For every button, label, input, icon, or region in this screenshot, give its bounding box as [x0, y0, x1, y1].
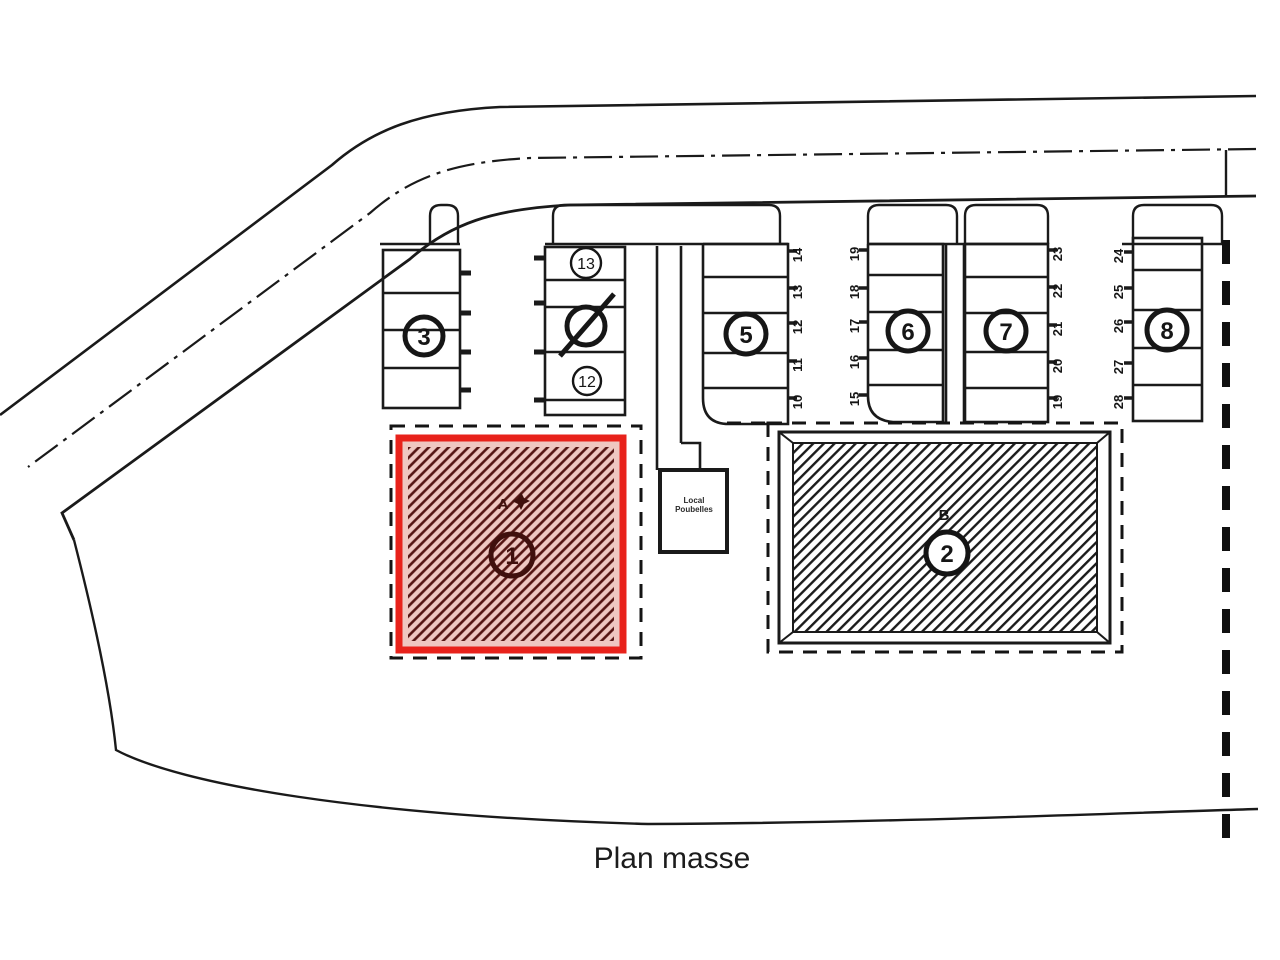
bay-circle-7: 7 — [986, 311, 1026, 351]
space-number: 26 — [1111, 319, 1126, 333]
building-a-unit: 1 — [505, 543, 518, 570]
bay-circle-13-label: 13 — [577, 256, 595, 273]
building-b-unit: 2 — [940, 541, 953, 568]
building-b-label: B — [939, 507, 950, 524]
space-number: 10 — [790, 395, 805, 409]
walkway-lines — [946, 244, 964, 422]
bay-circle-12: 12 — [573, 367, 601, 395]
space-number: 11 — [790, 358, 805, 372]
road-outer-edge — [0, 96, 1256, 415]
bin-store: Local Poubelles — [660, 470, 727, 552]
space-number: 13 — [790, 285, 805, 299]
bay-circle-13: 13 — [571, 248, 601, 278]
space-number: 19 — [847, 247, 862, 261]
bay-circle-5: 5 — [726, 314, 766, 354]
building-b: B 2 — [779, 432, 1110, 643]
space-number: 16 — [847, 355, 862, 369]
space-number: 24 — [1111, 248, 1126, 263]
bay-circle-8: 8 — [1147, 310, 1187, 350]
bay-circle-8-label: 8 — [1160, 318, 1173, 345]
building-a: A 1 — [399, 438, 623, 650]
site-plan-drawing: 14 13 12 11 10 19 18 17 16 15 23 22 21 2… — [0, 0, 1280, 960]
driveway — [657, 246, 700, 470]
bin-store-label-2: Poubelles — [675, 505, 713, 514]
space-number: 20 — [1050, 359, 1065, 373]
building-a-label: A — [498, 496, 509, 513]
space-number: 18 — [847, 285, 862, 299]
building-b-circle-2: 2 — [926, 532, 968, 574]
space-number: 17 — [847, 319, 862, 333]
bay-circle-3: 3 — [405, 317, 443, 355]
bay-circle-5-label: 5 — [739, 322, 752, 349]
road-centerline — [28, 149, 1256, 467]
space-number: 27 — [1111, 360, 1126, 374]
space-number: 21 — [1050, 322, 1065, 336]
space-number: 23 — [1050, 247, 1065, 261]
bay-circle-12-label: 12 — [578, 374, 596, 391]
plan-masse-page: 14 13 12 11 10 19 18 17 16 15 23 22 21 2… — [0, 0, 1280, 960]
bay-circle-3-label: 3 — [417, 324, 430, 351]
bay-circle-crossed — [560, 294, 614, 356]
page-title: Plan masse — [594, 842, 751, 875]
bay-circle-6: 6 — [888, 311, 928, 351]
space-number: 12 — [790, 320, 805, 334]
bay-circle-6-label: 6 — [901, 319, 914, 346]
space-number: 19 — [1050, 395, 1065, 409]
space-number: 25 — [1111, 285, 1126, 299]
space-numbers: 14 13 12 11 10 19 18 17 16 15 23 22 21 2… — [790, 247, 1126, 409]
bay-circle-7-label: 7 — [999, 319, 1012, 346]
space-number: 14 — [790, 247, 805, 262]
space-number: 28 — [1111, 395, 1126, 409]
bin-store-label-1: Local — [684, 496, 705, 505]
space-number: 15 — [847, 392, 862, 406]
space-number: 22 — [1050, 284, 1065, 298]
